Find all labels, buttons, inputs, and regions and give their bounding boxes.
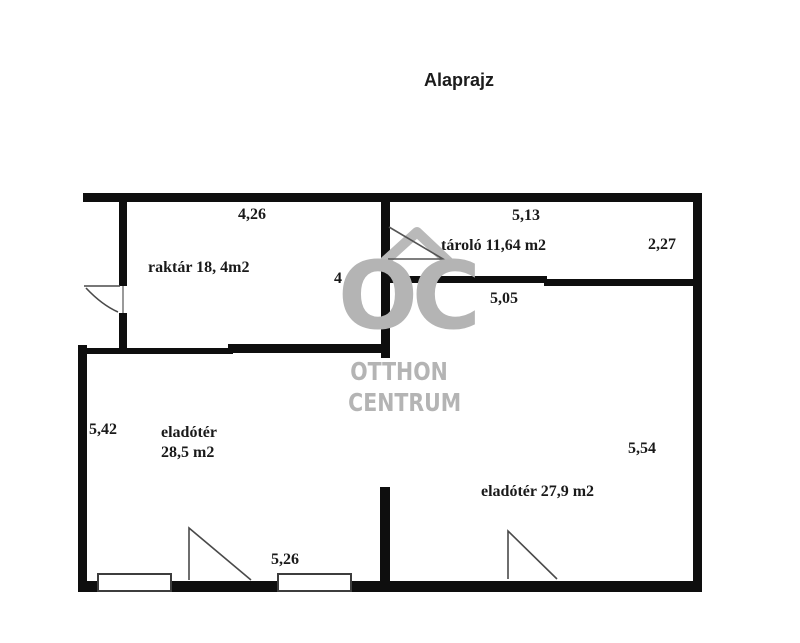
dimension-eladoter-2-width: 5,05 [490,289,518,309]
room-label-eladoter-2: eladótér 27,9 m2 [481,482,594,502]
dimension-raktar-height: 4 [334,269,342,289]
wall-left [78,345,87,592]
wall-eladoter-divider [380,487,390,581]
wall-top [83,193,702,202]
dimension-tarolo-height: 2,27 [648,235,676,255]
raktar-door-opening-line [122,286,124,313]
wall-raktar-left-upper [119,202,127,286]
room-label-eladoter-1: eladótér 28,5 m2 [161,423,217,463]
dimension-eladoter-1-height: 5,42 [89,420,117,440]
wall-right [693,193,702,592]
dimension-eladoter-1-width: 5,26 [271,550,299,570]
room-name: eladótér [161,423,217,443]
window-icon [97,573,172,592]
otthon-centrum-logo: OC [338,250,462,344]
room-label-raktar: raktár 18, 4m2 [148,258,249,278]
wall-eladoter1-top-left [78,348,233,354]
watermark-centrum: CENTRUM [348,390,450,415]
wall-tarolo-bottom-right [544,279,700,286]
floor-plan: Alaprajz OC OTTHON CENTRUM raktár 18 [0,0,800,643]
room-label-tarolo: tároló 11,64 m2 [441,236,546,256]
dimension-raktar-width: 4,26 [238,205,266,225]
room-area: 28,5 m2 [161,443,217,463]
door-swing-icon [508,531,557,579]
page-title: Alaprajz [424,70,494,91]
dimension-tarolo-width: 5,13 [512,206,540,226]
dimension-eladoter-2-height: 5,54 [628,439,656,459]
door-swing-icon [189,528,251,580]
wall-raktar-left-lower [119,313,127,352]
window-icon [277,573,352,592]
door-swing-icon [84,286,120,312]
watermark-otthon: OTTHON [348,359,450,384]
